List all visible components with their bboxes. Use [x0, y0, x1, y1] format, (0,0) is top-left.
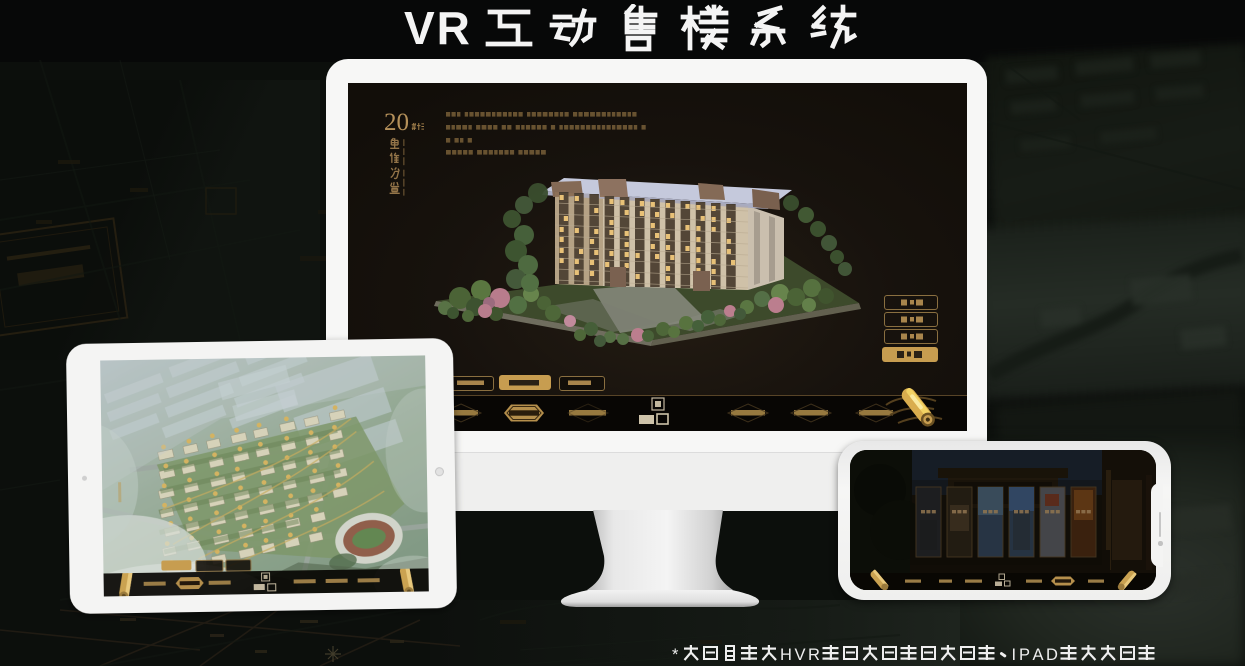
svg-text:H: H: [780, 646, 792, 664]
svg-text:P: P: [1019, 646, 1030, 664]
svg-text:I: I: [1012, 646, 1017, 664]
svg-text:V: V: [795, 646, 806, 664]
svg-text:*: *: [672, 646, 679, 664]
svg-text:R: R: [808, 646, 820, 664]
svg-text:A: A: [1033, 646, 1044, 664]
svg-text:D: D: [1046, 646, 1058, 664]
